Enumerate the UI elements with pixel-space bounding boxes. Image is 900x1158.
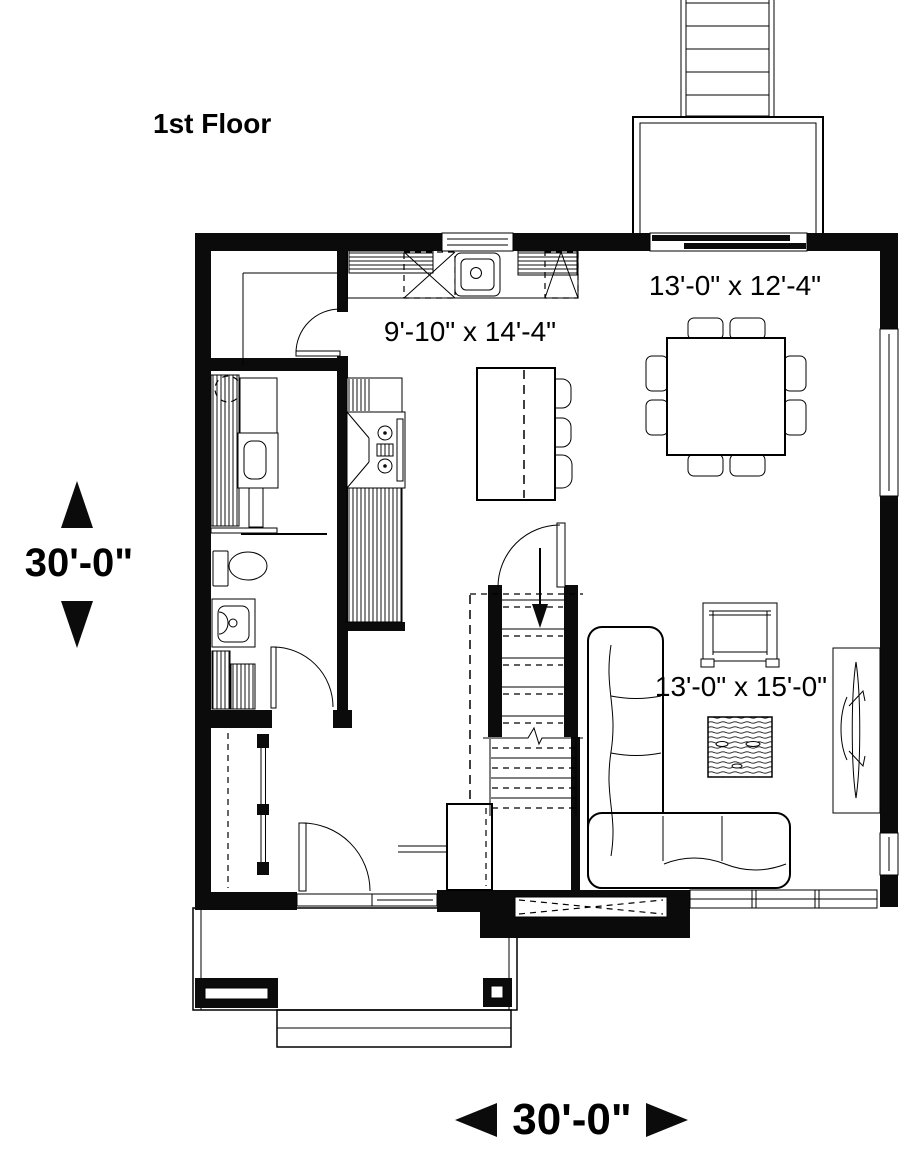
- range-with-hood: [347, 412, 405, 488]
- porch-steps: [277, 1010, 511, 1047]
- living-room: [588, 603, 880, 888]
- entry-hall: [228, 733, 492, 890]
- arrow-up-icon: [61, 481, 93, 528]
- deck-stairs: [681, 0, 774, 117]
- bathroom-door: [271, 647, 333, 708]
- arrow-right-icon: [646, 1103, 688, 1137]
- kitchen-size-label: 9'-10" x 14'-4": [384, 316, 556, 347]
- dining-chair: [646, 356, 668, 391]
- vanity-sink: [212, 599, 255, 647]
- vertical-dimension: 30'-0": [25, 481, 134, 648]
- shelf: [211, 528, 277, 533]
- toilet: [213, 551, 267, 586]
- right-window-lower: [880, 833, 898, 875]
- kitchen-sink: [455, 253, 500, 296]
- stair-door: [498, 523, 565, 587]
- console-table: [833, 648, 880, 813]
- dining-chair: [646, 400, 668, 435]
- right-window-upper: [880, 329, 898, 496]
- kitchen: [347, 251, 578, 622]
- entry-closet-doors: [257, 734, 269, 875]
- arrow-down-icon: [61, 601, 93, 648]
- stair-direction-arrow: [532, 548, 548, 628]
- dining-chair: [688, 318, 723, 340]
- living-room-window: [690, 890, 877, 908]
- washer: [238, 433, 278, 488]
- arrow-left-icon: [455, 1103, 497, 1137]
- linen-shelves: [212, 651, 230, 709]
- cabinet: [240, 378, 277, 433]
- coffee-table: [708, 717, 772, 777]
- dining-chair: [784, 356, 806, 391]
- living-size-label: 13'-0" x 15'-0": [655, 671, 827, 702]
- linen-shelves: [231, 664, 255, 709]
- bathroom: [212, 551, 333, 709]
- bay-window: [515, 897, 667, 917]
- depth-dimension-label: 30'-0": [25, 541, 134, 585]
- floor-plan-drawing: 1st Floor 9'-10" x 14'-4" 13'-0" x 12'-4…: [0, 0, 900, 1158]
- front-door: [297, 823, 437, 906]
- floor-plan-page: 1st Floor 9'-10" x 14'-4" 13'-0" x 12'-4…: [0, 0, 900, 1158]
- kitchen-island: [477, 368, 572, 500]
- entry-closet-top: [243, 273, 340, 366]
- dining-chair: [730, 318, 765, 340]
- width-dimension-label: 30'-0": [512, 1095, 631, 1144]
- porch-post: [483, 978, 512, 1007]
- planter: [195, 978, 278, 1008]
- pedestal: [249, 488, 263, 527]
- under-stair-closet: [447, 804, 492, 890]
- dining-chair: [688, 454, 723, 476]
- closet-shelving: [211, 375, 239, 526]
- rear-deck: [633, 117, 823, 235]
- patio-sliding-door: [650, 233, 807, 251]
- laundry-area: [211, 375, 327, 534]
- dining-chair: [784, 400, 806, 435]
- dining-size-label: 13'-0" x 12'-4": [649, 270, 821, 301]
- horizontal-dimension: 30'-0": [455, 1095, 688, 1144]
- dining-chair: [730, 454, 765, 476]
- dining-table: [667, 338, 785, 455]
- upper-cabinet-left: [349, 251, 433, 273]
- kitchen-window: [442, 233, 513, 251]
- dining-area: [646, 318, 806, 476]
- page-title: 1st Floor: [153, 108, 271, 139]
- armchair: [701, 603, 779, 667]
